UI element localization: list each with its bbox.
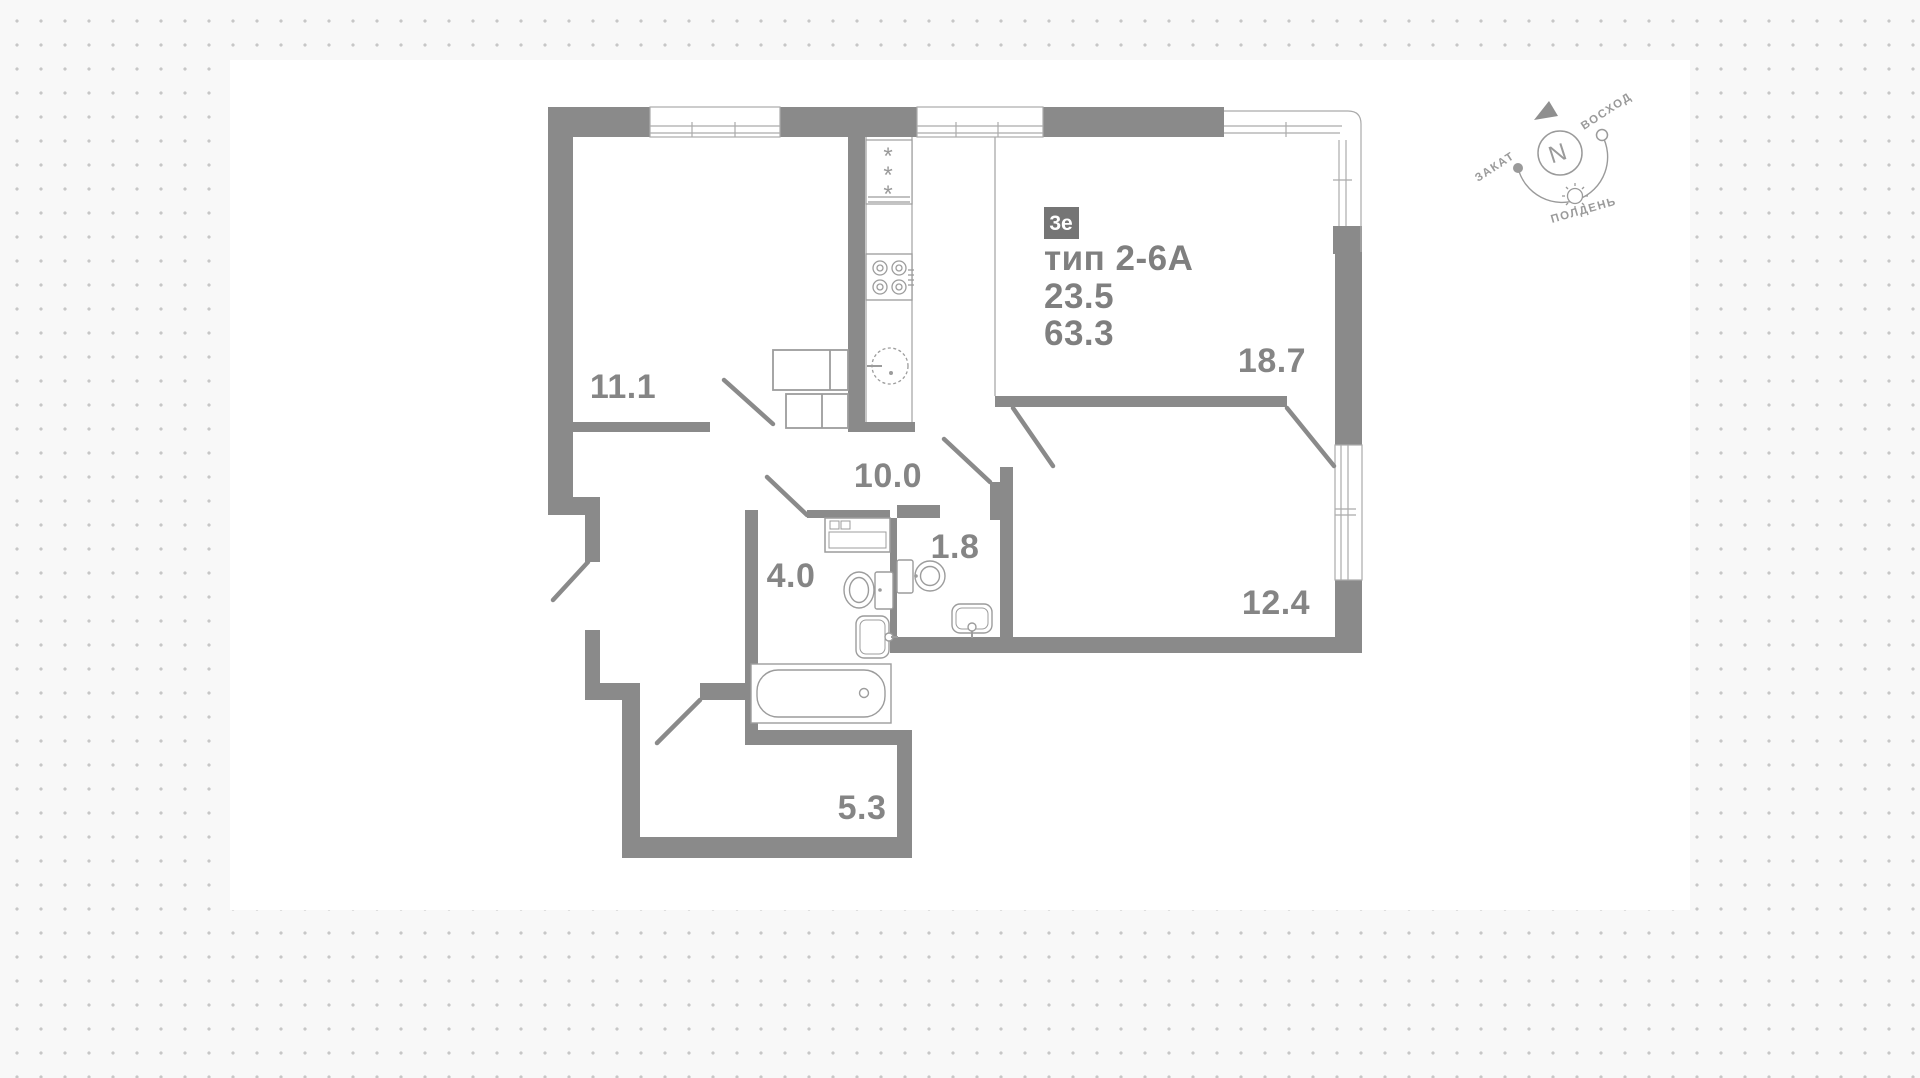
north-arrow-icon [1534, 101, 1558, 120]
window-icon [917, 107, 1043, 137]
door-swing-left-entry [553, 562, 588, 600]
compass-north-letter: N [1545, 138, 1570, 169]
vent-shaft-icon: * * * [866, 140, 912, 208]
door-swing-room11 [724, 380, 773, 424]
washbasin-icon [952, 604, 992, 638]
washer-icon [825, 518, 890, 552]
svg-text:*: * [883, 181, 892, 208]
plan-area-2: 63.3 [1044, 314, 1114, 353]
format-badge-label: 3е [1049, 212, 1072, 235]
room-area-label: 11.1 [590, 368, 656, 406]
room-area-label: 5.3 [838, 789, 887, 827]
plan-info-block: 3е тип 2-6А 23.5 63.3 [1044, 207, 1193, 353]
walls [548, 107, 1362, 858]
sunset-dot-icon [1513, 163, 1523, 173]
room-area-label: 12.4 [1242, 584, 1310, 622]
plan-canvas: * * * [230, 60, 1690, 910]
plan-type-label: тип 2-6А [1044, 239, 1193, 278]
room-area-label: 4.0 [767, 557, 816, 595]
room-area-label: 1.8 [931, 528, 980, 566]
door-swing-bathroom [767, 477, 807, 515]
kitchen-sink-icon [867, 348, 908, 384]
wardrobe-icon [773, 350, 848, 428]
room-area-label: 10.0 [854, 457, 922, 495]
door-swing-bedroom-left [1013, 408, 1053, 466]
compass-sunrise-label: ВОСХОД [1579, 91, 1634, 133]
room-area-label: 18.7 [1238, 342, 1306, 380]
toilet-icon [844, 572, 893, 609]
door-swing-hall [657, 700, 700, 743]
plan-area-1: 23.5 [1044, 277, 1114, 316]
bathtub-icon [751, 664, 891, 723]
stove-icon [866, 254, 914, 300]
door-swing-wc [944, 439, 990, 482]
compass-sunset-label: ЗАКАТ [1473, 150, 1517, 184]
sunrise-dot-icon [1597, 130, 1608, 141]
door-swing-bedroom-right [1287, 408, 1334, 466]
window-icon [650, 107, 780, 137]
floorplan-svg: * * * [230, 60, 1690, 910]
compass-noon-label: ПОЛДЕНЬ [1550, 196, 1619, 226]
window-icon [1335, 445, 1362, 580]
compass: N ВОСХОД ЗАКАТ ПОЛДЕНЬ [1473, 91, 1634, 226]
room-labels: 11.1 18.7 10.0 4.0 1.8 12.4 5.3 [590, 342, 1310, 827]
